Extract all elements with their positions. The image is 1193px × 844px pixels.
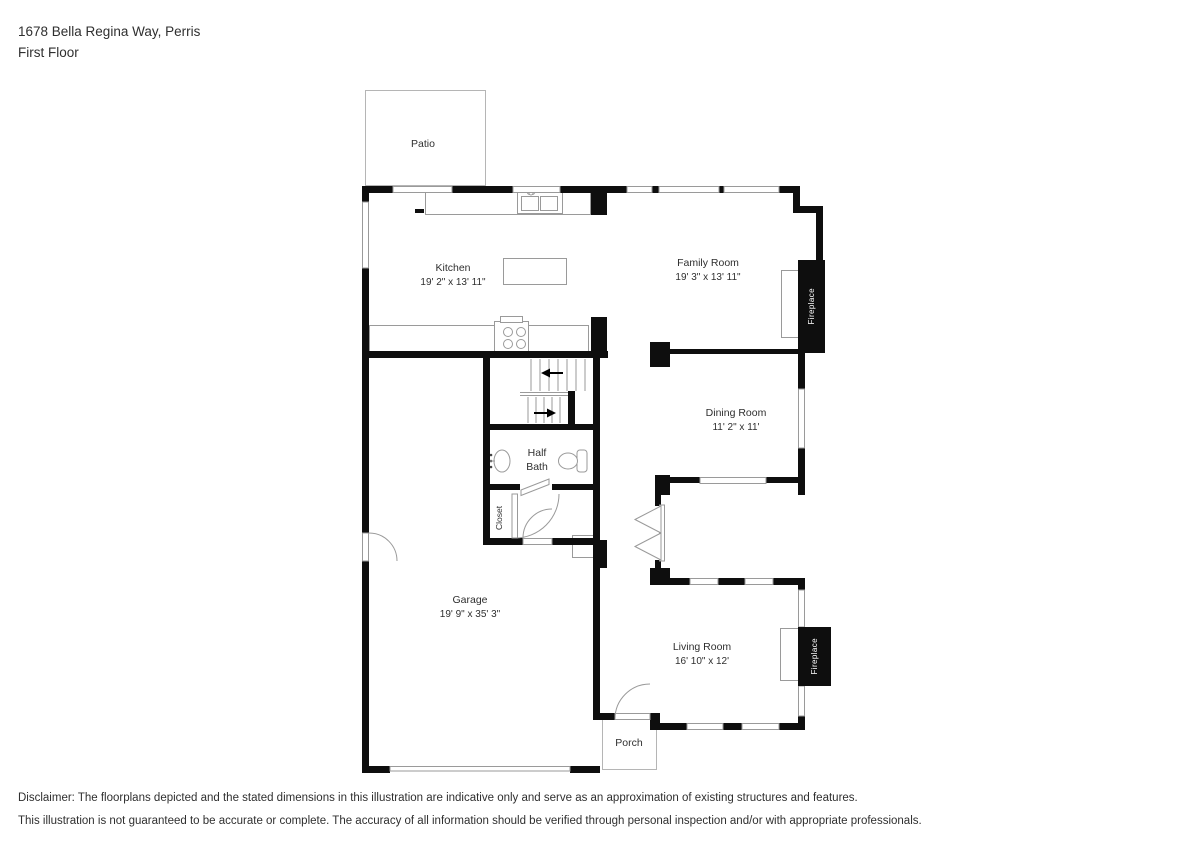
room-label-family-room: Family Room19' 3" x 13' 11": [675, 257, 740, 284]
room-label-half-bath: Half Bath: [526, 447, 548, 474]
floorplan-drawing: [0, 0, 1193, 844]
room-label-kitchen: Kitchen19' 2" x 13' 11": [420, 262, 485, 289]
fireplace-living: Fireplace: [798, 627, 831, 686]
floorplan-page: 1678 Bella Regina Way, Perris First Floo…: [0, 0, 1193, 844]
room-label-patio: Patio: [411, 138, 435, 152]
room-label-living-room: Living Room16' 10" x 12': [673, 641, 731, 668]
fireplace-living-label: Fireplace: [810, 638, 819, 675]
room-label-dining-room: Dining Room11' 2" x 11': [706, 407, 767, 434]
room-label-porch: Porch: [615, 737, 642, 751]
room-label-garage: Garage19' 9" x 35' 3": [440, 594, 500, 621]
counter-mark: [415, 209, 424, 213]
fireplace-family-label: Fireplace: [807, 288, 816, 325]
fireplace-family: Fireplace: [798, 260, 825, 353]
room-label-closet: Closet: [494, 496, 504, 540]
doors: [363, 479, 665, 720]
